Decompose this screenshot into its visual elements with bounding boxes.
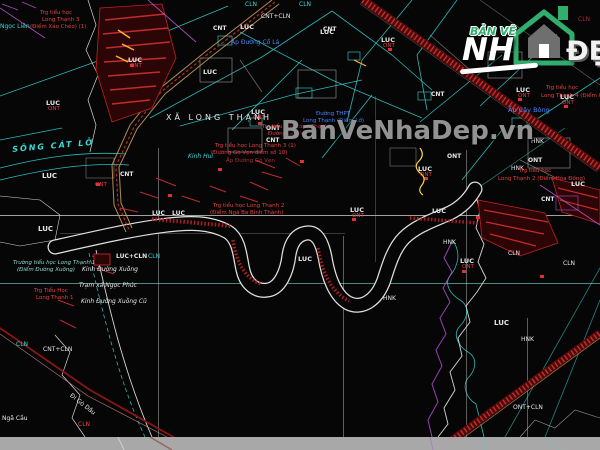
site-logo: BẢN VẼ NH ĐẸP [452, 0, 600, 86]
map-label: ONT [420, 173, 432, 179]
map-label: Trg tiểu học [40, 11, 72, 17]
map-label: Kinh Đường Xuồng Cũ [81, 299, 147, 305]
map-label: SÔNG CÁT LỞ [12, 139, 94, 154]
watermark-text: BanVeNhaDep.vn [281, 116, 534, 146]
map-label: CNT [323, 27, 337, 33]
bottom-margin-strip [0, 437, 600, 450]
map-label: Kinh Hui [188, 154, 213, 160]
cad-map-canvas: LUCLUCLUCLUCLUCLUCLUCLUCLUCLUCLUCLUCLUCL… [0, 0, 600, 450]
map-label: LUC [432, 208, 446, 215]
map-label: Long Thạnh 4 (Điểm Cầu) [541, 94, 600, 100]
map-label: CLN [78, 422, 90, 428]
map-label: LUC [38, 226, 53, 233]
map-label: Ngọc Liên [0, 24, 30, 30]
map-label: Kinh Đường Xuồng [82, 267, 138, 273]
map-label: Ấp Cây Bông [508, 107, 550, 114]
map-label: CNT [541, 197, 555, 203]
map-label: HNK [383, 296, 396, 302]
map-label: (Đường Gò Vẹn điểm số 10) [211, 151, 287, 157]
map-label: (Điểm Ngã Ba Bình Thành) [210, 211, 283, 217]
map-label: LUC+CLN [116, 254, 147, 260]
map-label: LUC [42, 173, 57, 180]
map-label: CLN [508, 251, 520, 257]
map-label: (Điểm Đường Xuồng) [17, 268, 75, 274]
map-label: CNT [120, 172, 134, 178]
map-label: Long Thạnh 3 [42, 18, 80, 24]
map-label: CNT [213, 26, 227, 32]
map-label: Trg Tiểu Học [34, 289, 68, 295]
map-label: LUC [494, 320, 509, 327]
map-label: ONT+CLN [513, 405, 543, 411]
map-label: ONT [95, 183, 107, 189]
strip-line-stubs [0, 437, 600, 450]
map-label: ONT [462, 265, 474, 271]
map-label: CLN [245, 2, 257, 8]
map-label: HNK [443, 240, 456, 246]
map-label: CLN [299, 2, 311, 8]
map-label: ONT [447, 154, 461, 160]
map-label: LUC [240, 24, 254, 31]
map-label: Đi Gò Dầu [68, 393, 96, 417]
map-label: Trg tiểu học [546, 86, 578, 92]
map-label: ONT [528, 158, 542, 164]
map-label: Ấp Đường Cổ Lá [231, 40, 279, 46]
map-label: ONT [48, 107, 60, 113]
map-label: Trg tiểu học [519, 169, 551, 175]
map-label: LUC [152, 211, 165, 217]
map-label: LUC [298, 256, 312, 263]
map-label: Trg tiểu học Long Thạnh 2 [213, 204, 284, 210]
map-label: ONT [383, 44, 395, 50]
map-label: HNK [521, 337, 534, 343]
map-label: Long Thạnh 1 [36, 296, 74, 302]
map-label: CNT+CLN [43, 347, 72, 353]
map-label: ONT [130, 64, 142, 70]
logo-suffix-text: ĐẸP [566, 36, 600, 67]
map-label: ONT [518, 94, 530, 100]
map-label: Ngã Cầu [2, 416, 28, 422]
map-label: CNT+CLN [261, 14, 290, 20]
map-label: ONT [352, 214, 364, 220]
map-label: LUC [172, 211, 185, 217]
map-label: (Điểm Xáo Chéo) (1) [30, 25, 86, 31]
map-label: XÃ LONG THẠNH [166, 114, 272, 122]
map-label: CNT [431, 92, 445, 98]
map-label: CLN [148, 254, 160, 260]
map-label: Long Thạnh 2 (Điểm Hòa Đồng) [498, 177, 585, 183]
map-label: CLN [563, 261, 575, 267]
map-label: ONT [562, 101, 574, 107]
map-label: CLN [16, 342, 28, 348]
map-label: Ấp Đường Gò Vẹn [226, 159, 275, 165]
logo-main-text: NH [462, 32, 514, 68]
map-label: LUC [203, 69, 217, 76]
map-label: Trạm xá Ngọc Phúc [79, 283, 137, 289]
